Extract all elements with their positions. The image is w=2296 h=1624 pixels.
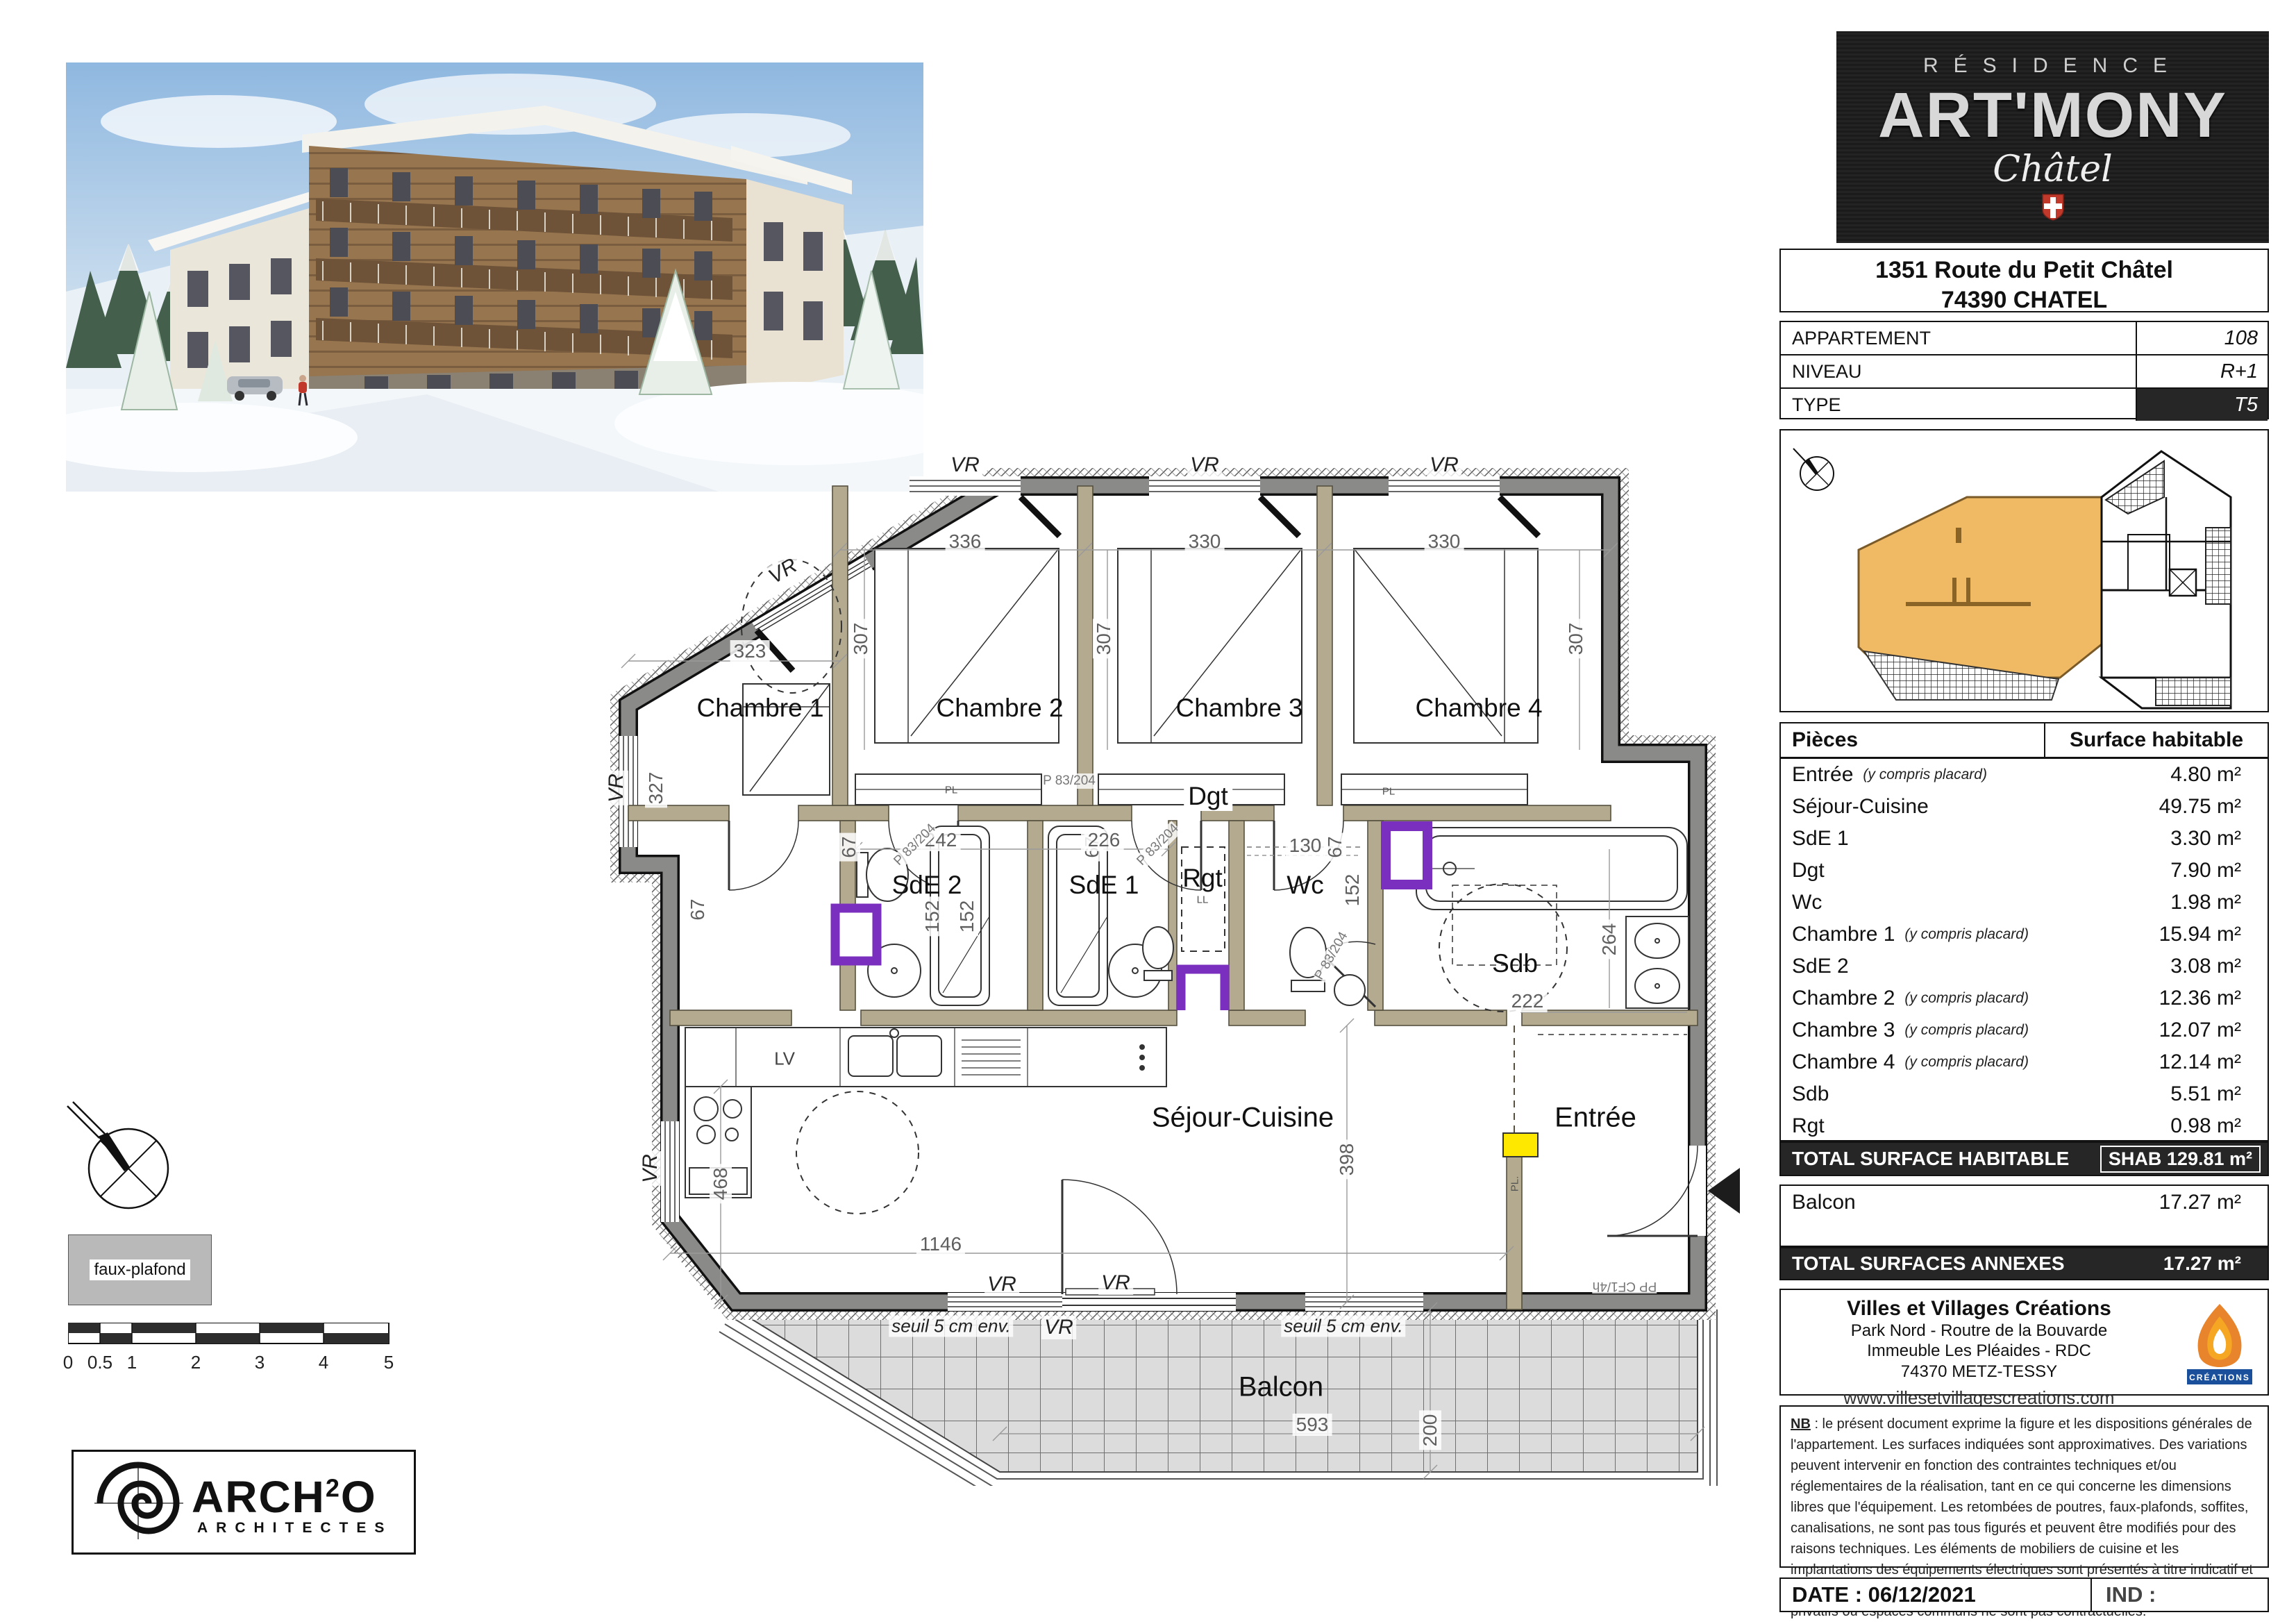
room-name: SdE 2 xyxy=(1781,955,1849,978)
room-name: Séjour-Cuisine xyxy=(1781,795,1929,819)
annex-row: Balcon 17.27 m² xyxy=(1781,1186,2268,1219)
room-name: Sdb xyxy=(1781,1082,1829,1106)
room-label-chambre2: Chambre 2 xyxy=(936,694,1063,723)
surface-row: Chambre 3(y compris placard)12.07 m² xyxy=(1781,1014,2268,1046)
svg-text:CRÉATIONS: CRÉATIONS xyxy=(2189,1372,2250,1382)
surface-row: Chambre 2(y compris placard)12.36 m² xyxy=(1781,982,2268,1014)
info-label: TYPE xyxy=(1781,394,2136,416)
info-value-type: T5 xyxy=(2136,389,2268,421)
architect-name-sup: 2 xyxy=(326,1474,341,1502)
room-label-balcon: Balcon xyxy=(1239,1372,1323,1403)
vr-label-top-a: VR xyxy=(948,453,982,477)
room-label-chambre3: Chambre 3 xyxy=(1175,694,1302,723)
surface-row: SdE 23.08 m² xyxy=(1781,951,2268,982)
room-name: Chambre 1 xyxy=(1781,923,1895,946)
nb-note: NB : le présent document exprime la figu… xyxy=(1779,1405,2269,1568)
date-box: DATE : 06/12/2021 IND : xyxy=(1779,1577,2269,1612)
surface-row: SdE 13.30 m² xyxy=(1781,823,2268,855)
pl-label-a: PL xyxy=(945,785,957,796)
scale-tick-4: 4 xyxy=(319,1352,328,1373)
dim-130: 130 xyxy=(1286,835,1325,857)
company-address-1: Park Nord - Routre de la Bouvarde xyxy=(1781,1321,2177,1341)
annex-total-bar: TOTAL SURFACES ANNEXES 17.27 m² xyxy=(1779,1247,2269,1280)
total-habitable-value: SHAB 129.81 m² xyxy=(2100,1146,2261,1173)
dim-152-a: 152 xyxy=(921,897,944,937)
room-label-chambre1: Chambre 1 xyxy=(696,694,823,723)
apartment-info-table: APPARTEMENT 108 NIVEAU R+1 TYPE T5 xyxy=(1779,321,2269,419)
room-surface: 49.75 m² xyxy=(2159,795,2268,819)
key-plan-drawing xyxy=(1781,430,2268,711)
room-label-sde2: SdE 2 xyxy=(892,871,962,900)
info-value: R+1 xyxy=(2136,355,2268,387)
electrical-panel xyxy=(1503,1133,1538,1157)
room-name: Chambre 3 xyxy=(1781,1019,1895,1042)
company-name: Villes et Villages Créations xyxy=(1781,1297,2177,1321)
seuil-label-a: seuil 5 cm env. xyxy=(889,1316,1013,1337)
kitchen-purple-column xyxy=(835,908,877,961)
ind-value: IND : xyxy=(2090,1579,2268,1611)
room-note: (y compris placard) xyxy=(1904,1022,2029,1039)
surface-row: Sdb5.51 m² xyxy=(1781,1078,2268,1110)
dim-323: 323 xyxy=(730,640,770,662)
balcony-floor xyxy=(736,1309,1698,1472)
room-name: Wc xyxy=(1781,891,1822,914)
architect-name: ARCH2O xyxy=(192,1471,377,1523)
pl-label-c: PL. xyxy=(1509,1176,1521,1192)
room-label-wc: Wc xyxy=(1287,871,1323,900)
room-surface: 3.08 m² xyxy=(2170,955,2268,978)
vr-label-top-b: VR xyxy=(1187,453,1222,477)
residence-place: Châtel xyxy=(1993,149,2113,190)
address-box: 1351 Route du Petit Châtel 74390 CHATEL xyxy=(1779,249,2269,312)
room-label-rgt: Rgt xyxy=(1182,864,1223,893)
vr-label-left-b: VR xyxy=(639,1151,662,1186)
date-value: DATE : 06/12/2021 xyxy=(1781,1582,2090,1607)
dim-67-a: 67 xyxy=(838,832,860,861)
room-label-entree: Entrée xyxy=(1555,1103,1636,1134)
spiral-icon xyxy=(86,1460,190,1543)
faux-plafond-legend: faux-plafond xyxy=(68,1234,212,1305)
scale-bar: 0 0.5 1 2 3 4 5 xyxy=(68,1323,394,1375)
surface-row: Séjour-Cuisine49.75 m² xyxy=(1781,791,2268,823)
info-label: APPARTEMENT xyxy=(1781,328,2136,349)
architect-name-arch: ARCH xyxy=(192,1472,326,1522)
dim-152-c: 152 xyxy=(1341,871,1364,910)
room-label-sdb: Sdb xyxy=(1492,949,1538,978)
annex-box: Balcon 17.27 m² xyxy=(1779,1184,2269,1247)
scale-tick-5: 5 xyxy=(384,1352,394,1373)
info-label: NIVEAU xyxy=(1781,361,2136,383)
room-surface: 4.80 m² xyxy=(2170,763,2268,787)
room-label-sde1: SdE 1 xyxy=(1069,871,1139,900)
scale-tick-05: 0.5 xyxy=(87,1352,112,1373)
residence-word: RÉSIDENCE xyxy=(1923,54,2182,78)
room-note: (y compris placard) xyxy=(1863,767,1987,783)
room-name: Dgt xyxy=(1781,859,1825,882)
key-plan-box xyxy=(1779,429,2269,712)
annex-value: 17.27 m² xyxy=(2159,1191,2268,1214)
dim-327: 327 xyxy=(645,769,667,808)
dim-398: 398 xyxy=(1336,1140,1358,1180)
dim-307-b: 307 xyxy=(1093,619,1115,659)
compass-icon xyxy=(52,1094,191,1225)
nb-prefix: NB xyxy=(1791,1416,1811,1432)
vr-label-bottom-c: VR xyxy=(1041,1316,1076,1339)
surface-row: Dgt7.90 m² xyxy=(1781,855,2268,887)
annex-total-value: 17.27 m² xyxy=(2163,1253,2268,1275)
dim-307-c: 307 xyxy=(1565,619,1587,659)
ll-label: LL xyxy=(1197,894,1209,906)
surface-row: Chambre 4(y compris placard)12.14 m² xyxy=(1781,1046,2268,1078)
surface-row: Chambre 1(y compris placard)15.94 m² xyxy=(1781,919,2268,951)
surface-row: Rgt0.98 m² xyxy=(1781,1110,2268,1142)
residence-name: ART'MONY xyxy=(1878,83,2227,147)
dim-336: 336 xyxy=(946,530,985,553)
surfaces-header-surface: Surface habitable xyxy=(2044,723,2268,757)
floor-plan: Chambre 1 Chambre 2 Chambre 3 Chambre 4 … xyxy=(305,430,1750,1486)
surface-row: Entrée(y compris placard)4.80 m² xyxy=(1781,759,2268,791)
dim-330-b: 330 xyxy=(1425,530,1464,553)
room-surface: 7.90 m² xyxy=(2170,859,2268,882)
dim-152-b: 152 xyxy=(956,897,978,937)
dim-330-a: 330 xyxy=(1185,530,1225,553)
total-habitable-label: TOTAL SURFACE HABITABLE xyxy=(1781,1148,2069,1170)
surface-row: Wc1.98 m² xyxy=(1781,887,2268,919)
info-value: 108 xyxy=(2136,322,2268,354)
room-name: SdE 1 xyxy=(1781,827,1849,851)
seuil-label-b: seuil 5 cm env. xyxy=(1281,1316,1405,1337)
scale-tick-2: 2 xyxy=(191,1352,201,1373)
scale-tick-0: 0 xyxy=(63,1352,73,1373)
scale-tick-3: 3 xyxy=(255,1352,265,1373)
pl-label-b: PL xyxy=(1382,786,1395,798)
plan-sheet: Chambre 1 Chambre 2 Chambre 3 Chambre 4 … xyxy=(0,0,2296,1624)
room-surface: 0.98 m² xyxy=(2170,1114,2268,1138)
scale-tick-1: 1 xyxy=(127,1352,137,1373)
room-surface: 3.30 m² xyxy=(2170,827,2268,851)
room-surface: 12.07 m² xyxy=(2159,1019,2268,1042)
lv-label: LV xyxy=(774,1048,795,1070)
info-row-type: TYPE T5 xyxy=(1781,389,2268,421)
dim-468: 468 xyxy=(710,1164,732,1204)
dim-67-d: 67 xyxy=(687,895,709,923)
company-address-2: Immeuble Les Pléaides - RDC xyxy=(1781,1341,2177,1361)
dim-222: 222 xyxy=(1508,990,1548,1012)
room-label-chambre4: Chambre 4 xyxy=(1415,694,1542,723)
dim-593: 593 xyxy=(1293,1414,1332,1436)
building-photo-graphic xyxy=(66,62,923,492)
key-plan-unit-highlight xyxy=(1859,497,2102,678)
annex-total-label: TOTAL SURFACES ANNEXES xyxy=(1781,1253,2065,1275)
room-surface: 1.98 m² xyxy=(2170,891,2268,914)
address-line1: 1351 Route du Petit Châtel xyxy=(1781,256,2268,285)
vr-label-bottom-a: VR xyxy=(984,1273,1019,1296)
dim-307-a: 307 xyxy=(850,619,872,659)
door-tag-d: P 83/204 xyxy=(1043,773,1096,789)
room-name: Entrée xyxy=(1781,763,1853,787)
surfaces-header: Pièces Surface habitable xyxy=(1781,723,2268,759)
room-label-sejour: Séjour-Cuisine xyxy=(1152,1103,1334,1134)
total-habitable-bar: TOTAL SURFACE HABITABLE SHAB 129.81 m² xyxy=(1779,1141,2269,1176)
room-label-dgt: Dgt xyxy=(1184,782,1232,811)
room-surface: 12.14 m² xyxy=(2159,1050,2268,1074)
dim-200: 200 xyxy=(1419,1411,1441,1450)
vr-label-top-c: VR xyxy=(1427,453,1461,477)
dim-226: 226 xyxy=(1084,829,1124,851)
address-line2: 74390 CHATEL xyxy=(1781,285,2268,315)
room-surface: 5.51 m² xyxy=(2170,1082,2268,1106)
door-tag-pp: PP CF1/4h xyxy=(1593,1278,1657,1294)
company-logo-icon: CRÉATIONS xyxy=(2181,1298,2258,1387)
building-photo xyxy=(66,62,923,492)
room-note: (y compris placard) xyxy=(1904,1054,2029,1071)
room-name: Rgt xyxy=(1781,1114,1825,1138)
residence-logo: RÉSIDENCE ART'MONY Châtel xyxy=(1836,31,2269,243)
room-name: Chambre 2 xyxy=(1781,987,1895,1010)
dim-67-c: 67 xyxy=(1324,832,1346,861)
room-surface: 12.36 m² xyxy=(2159,987,2268,1010)
dim-1146: 1146 xyxy=(916,1233,965,1255)
room-note: (y compris placard) xyxy=(1904,926,2029,943)
architect-name-o: O xyxy=(341,1472,377,1522)
surfaces-table: Pièces Surface habitable Entrée(y compri… xyxy=(1779,722,2269,1141)
vr-label-bottom-b: VR xyxy=(1098,1271,1133,1295)
faux-plafond-label: faux-plafond xyxy=(90,1259,190,1280)
room-surface: 15.94 m² xyxy=(2159,923,2268,946)
room-note: (y compris placard) xyxy=(1904,990,2029,1007)
company-box: Villes et Villages Créations Park Nord -… xyxy=(1779,1289,2269,1396)
savoie-shield-icon xyxy=(2041,193,2065,221)
company-address-3: 74370 METZ-TESSY xyxy=(1781,1362,2177,1382)
vr-label-left-a: VR xyxy=(605,771,628,805)
annex-name: Balcon xyxy=(1781,1191,1856,1214)
surfaces-header-pieces: Pièces xyxy=(1781,728,2044,752)
sdb-purple-column xyxy=(1386,826,1427,885)
info-row-appartement: APPARTEMENT 108 xyxy=(1781,322,2268,355)
info-row-niveau: NIVEAU R+1 xyxy=(1781,355,2268,389)
room-name: Chambre 4 xyxy=(1781,1050,1895,1074)
architect-subtitle: ARCHITECTES xyxy=(197,1520,392,1537)
architect-logo: ARCH2O ARCHITECTES xyxy=(72,1450,416,1555)
dim-264: 264 xyxy=(1598,920,1620,960)
